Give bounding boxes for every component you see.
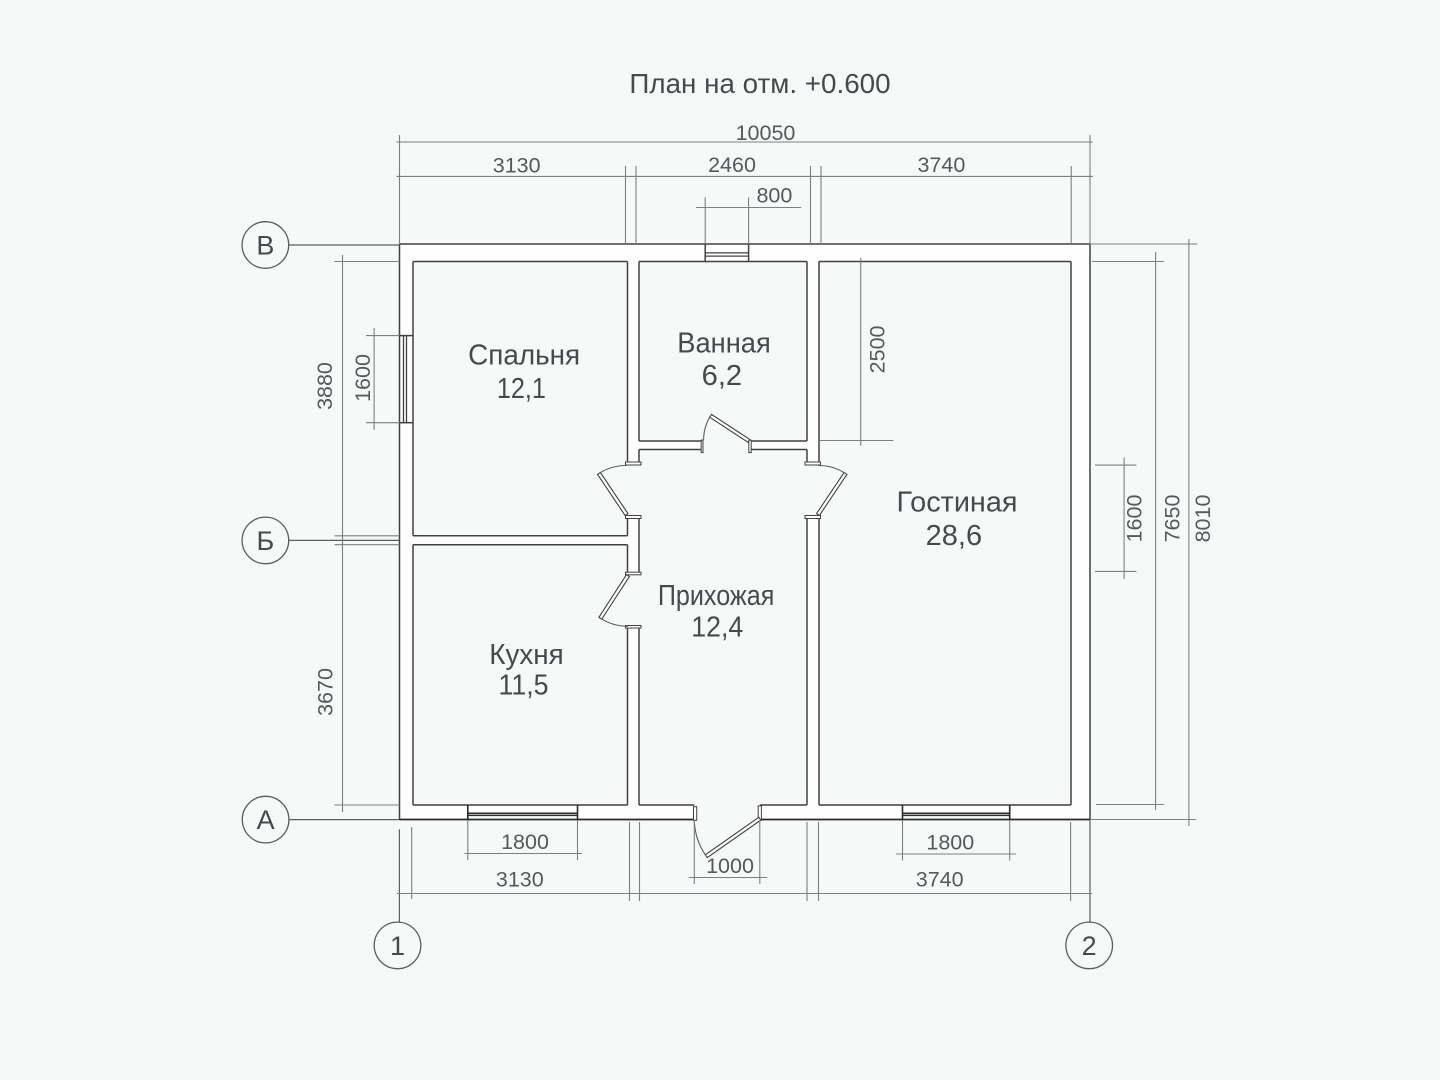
svg-text:Ванная: Ванная <box>677 327 771 359</box>
svg-text:Б: Б <box>257 526 275 556</box>
svg-text:3880: 3880 <box>313 362 337 410</box>
svg-text:11,5: 11,5 <box>499 670 549 702</box>
svg-text:2: 2 <box>1082 931 1097 961</box>
svg-text:А: А <box>257 805 275 835</box>
svg-text:800: 800 <box>756 184 792 208</box>
svg-text:Прихожая: Прихожая <box>658 580 775 612</box>
svg-text:3130: 3130 <box>493 153 541 177</box>
svg-text:1600: 1600 <box>351 354 375 402</box>
svg-text:10050: 10050 <box>736 121 796 145</box>
svg-text:План на отм. +0.600: План на отм. +0.600 <box>629 68 890 99</box>
svg-text:3130: 3130 <box>496 868 544 892</box>
svg-text:3740: 3740 <box>917 153 965 177</box>
svg-text:1800: 1800 <box>926 830 974 854</box>
svg-text:1800: 1800 <box>501 830 549 854</box>
svg-text:6,2: 6,2 <box>702 360 743 392</box>
svg-text:7650: 7650 <box>1160 495 1184 543</box>
svg-text:2500: 2500 <box>865 325 889 373</box>
svg-text:8010: 8010 <box>1191 495 1215 543</box>
svg-text:Кухня: Кухня <box>489 639 564 671</box>
svg-text:1000: 1000 <box>706 854 754 878</box>
svg-text:1600: 1600 <box>1122 495 1146 543</box>
svg-text:В: В <box>256 231 274 261</box>
svg-text:12,4: 12,4 <box>691 611 743 643</box>
svg-text:2460: 2460 <box>708 153 756 177</box>
svg-text:Гостиная: Гостиная <box>897 487 1018 519</box>
svg-text:3670: 3670 <box>313 668 337 716</box>
svg-text:28,6: 28,6 <box>926 520 983 552</box>
svg-text:12,1: 12,1 <box>497 373 546 405</box>
svg-text:3740: 3740 <box>916 868 964 892</box>
svg-text:Спальня: Спальня <box>468 339 580 371</box>
svg-text:1: 1 <box>390 931 405 961</box>
